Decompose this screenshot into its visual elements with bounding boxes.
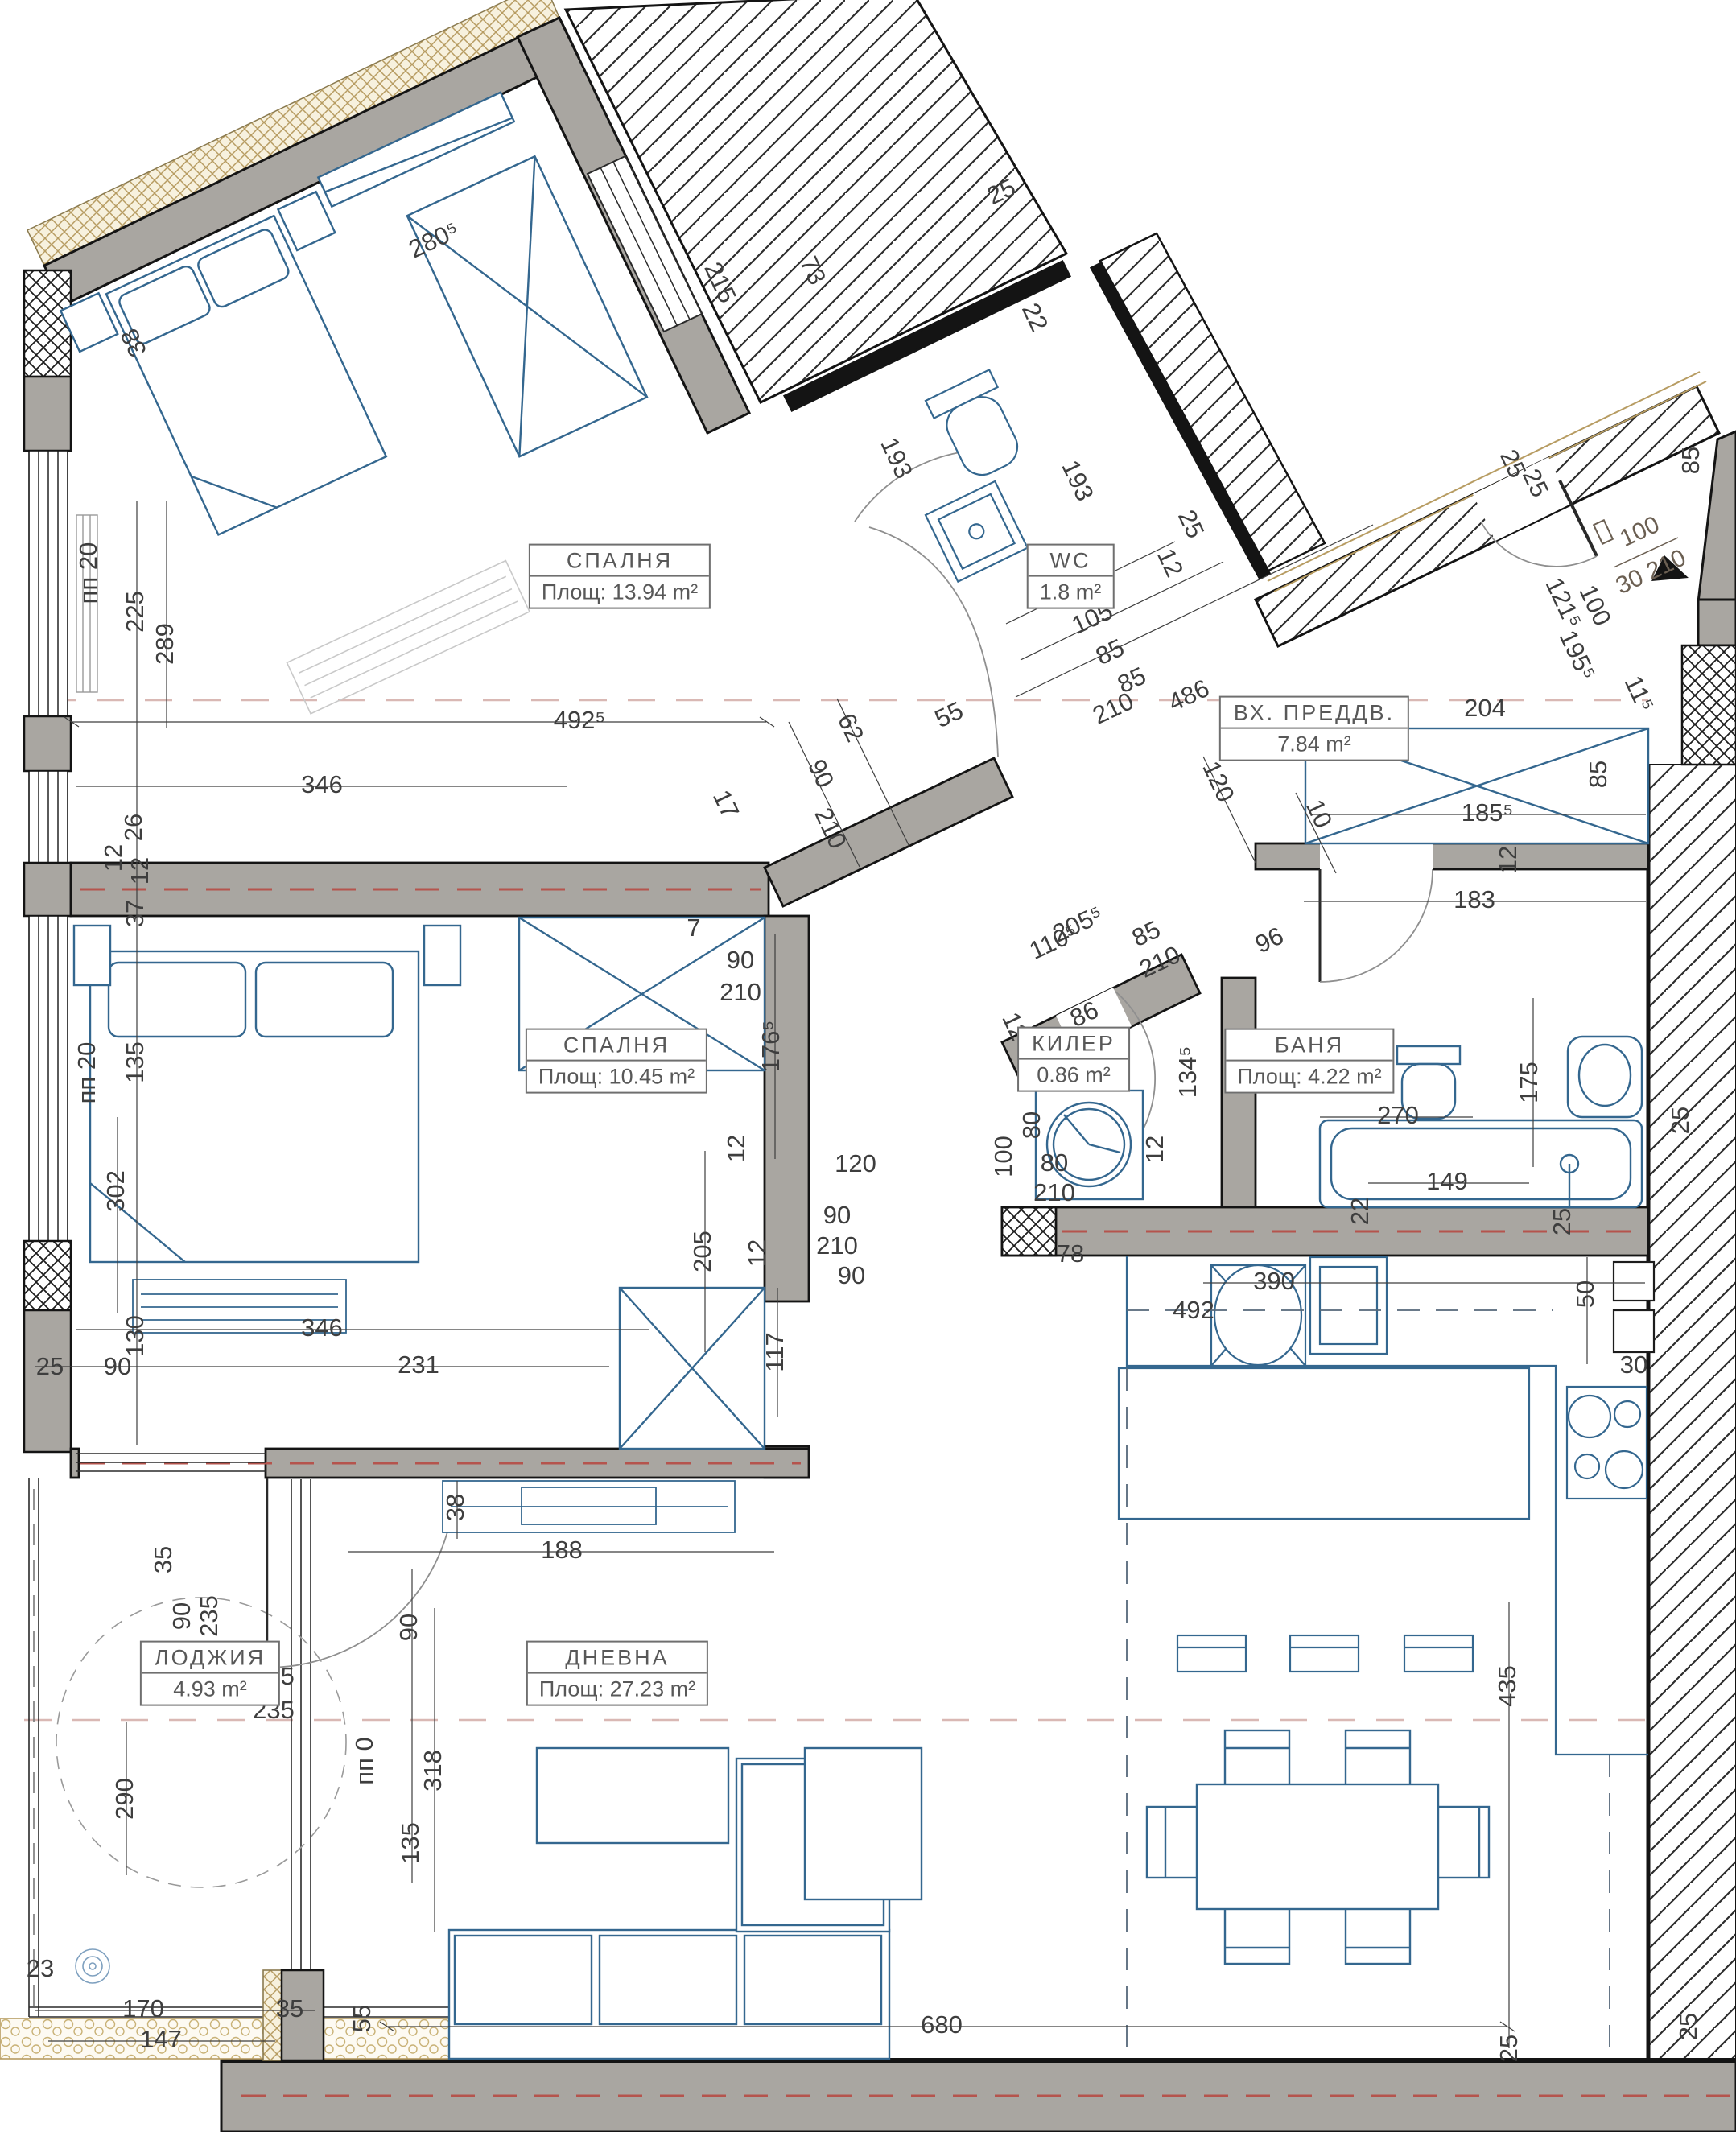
dimension-label: 175 — [1515, 1062, 1543, 1103]
dimension-label: 134⁵ — [1173, 1046, 1202, 1099]
cooktop — [1567, 1387, 1647, 1499]
dimension-label: 290 — [110, 1778, 138, 1820]
dimension-label: 90 — [727, 946, 754, 974]
dimension-label: 147 — [140, 2025, 182, 2053]
dimension-label: 210 — [720, 978, 761, 1006]
dimension-label: 85 — [1584, 761, 1612, 788]
dimension-label: 231 — [398, 1351, 439, 1379]
dimension-label: 193 — [875, 433, 918, 483]
dimension-label: 7 — [687, 913, 700, 942]
coffee-table — [805, 1748, 922, 1899]
dimension-label: 17 — [707, 786, 744, 823]
dimension-label: 129 — [1104, 1052, 1132, 1094]
dimension-label: 12 — [1140, 1136, 1169, 1163]
dimension-label: 90 — [823, 1201, 851, 1229]
floor-plan-drawing: 100 30 210 280⁵38215225289пп 20492⁵34619… — [0, 0, 1736, 2132]
dimension-label: 492 — [1173, 1296, 1214, 1324]
masonry-block-left-2 — [24, 1241, 71, 1310]
dimension-label: 30 — [1620, 1351, 1647, 1379]
dimension-label: пп 20 — [72, 1042, 101, 1104]
dimension-label: пп 20 — [74, 542, 102, 604]
dimension-label: 55 — [348, 2005, 376, 2032]
door-size-label: 100 — [1616, 511, 1664, 552]
dimension-label: 302 — [101, 1170, 130, 1212]
dimension-label: 176⁵ — [757, 1021, 785, 1073]
dimension-label: 25 — [36, 1352, 64, 1380]
dimension-label: 435 — [1493, 1665, 1521, 1707]
dimension-label: 12 — [1152, 544, 1189, 581]
dimension-label: 12 — [722, 1135, 750, 1162]
dimension-label: 25 — [1674, 2013, 1702, 2040]
dimension-label: 25 — [1666, 1107, 1694, 1134]
dimension-label: 235 — [253, 1696, 295, 1724]
dimension-label: 120 — [1197, 757, 1240, 806]
dimension-label: 135 — [121, 1041, 149, 1083]
dimension-label: 25 — [1173, 505, 1210, 542]
floor-plan-canvas: 100 30 210 280⁵38215225289пп 20492⁵34619… — [0, 0, 1736, 2132]
dimension-label: 193 — [1056, 456, 1099, 505]
dimension-label: 225 — [121, 591, 149, 633]
dimension-label: 12 — [126, 857, 154, 885]
bath-door-gap — [1320, 840, 1433, 872]
dimension-label: 55 — [930, 696, 967, 733]
dimension-label: 210 — [816, 1231, 858, 1260]
neighbour-hatch-right — [1648, 765, 1736, 2060]
furniture-living — [443, 1481, 1489, 2059]
door-bath — [1320, 869, 1433, 982]
dimension-label: 37 — [121, 900, 149, 927]
coffee-table — [537, 1748, 728, 1843]
dimension-label: 492⁵ — [554, 706, 606, 734]
dimension-label: 96 — [1251, 922, 1288, 959]
dimension-label: 270 — [1377, 1101, 1419, 1129]
furniture-hall — [1036, 728, 1648, 1207]
dimension-label: 183 — [1454, 885, 1495, 913]
dimension-label: 346 — [301, 770, 343, 798]
french-window-loggia — [76, 1454, 266, 1471]
stair-hatch-wc-side — [1100, 233, 1325, 571]
dimension-label: пп 0 — [350, 1737, 378, 1784]
entrance-door-tag: 100 30 210 — [1594, 511, 1690, 600]
dimension-label: 90 — [167, 1602, 196, 1630]
dimension-label: 26 — [119, 814, 147, 841]
wall-block-right — [1698, 600, 1736, 645]
dimension-label: 120 — [835, 1149, 876, 1177]
dining-set — [1147, 1730, 1489, 1964]
dimension-label: 35 — [276, 1994, 303, 2023]
dimension-label: 185⁵ — [1462, 798, 1514, 827]
dimension-label: 80 — [1041, 1148, 1068, 1177]
toilet — [926, 369, 1030, 485]
dimension-label: 12 — [1494, 846, 1522, 873]
dimension-label: 25 — [1548, 1208, 1576, 1235]
dimension-label: 346 — [301, 1313, 343, 1342]
dimension-label: 50 — [1571, 1280, 1599, 1308]
dimension-label: 680 — [921, 2010, 963, 2039]
dimension-label: 188 — [541, 1536, 583, 1564]
masonry-block-closet — [1002, 1207, 1056, 1256]
rug — [287, 561, 529, 714]
dimension-label: 90 — [104, 1352, 131, 1380]
dimension-label: 11⁵ — [1619, 671, 1660, 716]
dining-table — [1197, 1784, 1438, 1909]
dimension-label: 100 — [989, 1136, 1017, 1177]
dimension-label: 22 — [1346, 1198, 1374, 1225]
tv-unit — [443, 1481, 735, 1532]
dimension-label: 235 — [195, 1595, 223, 1637]
dimension-label: 105 — [1067, 596, 1117, 640]
dimension-label: 22 — [1016, 299, 1054, 336]
nightstand — [74, 926, 110, 985]
dimension-label: 195⁵ — [1554, 625, 1602, 684]
wall-stub-hall — [765, 758, 1012, 906]
wall-bath-top — [1256, 843, 1648, 869]
dimension-label: 80 — [1017, 1111, 1045, 1139]
dimension-label: 62 — [832, 709, 869, 746]
nightstand — [424, 926, 460, 985]
dimension-label: 85 — [1091, 633, 1128, 670]
dimension-label: 149 — [1426, 1167, 1468, 1195]
kitchen-island — [1119, 1368, 1529, 1519]
door-loggia — [267, 1478, 455, 1668]
drain-icon — [76, 1949, 109, 1983]
dimension-label: 130 — [121, 1315, 149, 1357]
washbasin — [926, 481, 1028, 582]
dimension-label: 135 — [396, 1822, 424, 1864]
dimension-label: 318 — [419, 1750, 447, 1792]
wall-bedroom2-right-upper — [765, 916, 809, 1301]
bar-stools — [1177, 1635, 1473, 1672]
dimension-label: 117 — [761, 1332, 789, 1371]
masonry-block-left-1 — [24, 270, 71, 377]
fixtures-wc — [926, 369, 1030, 581]
dimension-label: 12 — [99, 844, 127, 872]
dimension-label: 210 — [1033, 1178, 1075, 1206]
door-sill-label: 30 210 — [1612, 544, 1690, 600]
dimension-label: 90 — [394, 1614, 423, 1641]
dimension-label: 170 — [122, 1994, 164, 2023]
dimension-label: 85 — [1676, 447, 1705, 474]
washbasin — [1568, 1037, 1642, 1117]
dimension-label: 486 — [1164, 674, 1214, 717]
bathtub — [1320, 1120, 1642, 1207]
left-facade — [24, 270, 71, 1452]
dimension-label: 23 — [27, 1954, 54, 1982]
loggia-swing-circle — [56, 1598, 346, 1887]
masonry-block-right — [1682, 645, 1736, 765]
dimension-label: 25 — [1495, 2035, 1523, 2062]
dimension-label: 35 — [149, 1546, 177, 1573]
dimension-label: 204 — [1464, 694, 1506, 722]
dimension-label: 390 — [1253, 1267, 1295, 1295]
dishwasher — [1310, 1257, 1387, 1354]
dimension-label: 205 — [688, 1231, 716, 1272]
wall-closet-right — [1222, 978, 1256, 1207]
dimension-label: 225 — [253, 1662, 295, 1690]
dimension-label: 12 — [743, 1239, 771, 1267]
dimension-label: 38 — [441, 1494, 469, 1521]
dimension-label: 289 — [151, 623, 179, 665]
dimension-label: 78 — [1057, 1239, 1084, 1268]
dimension-label: 90 — [838, 1261, 865, 1289]
